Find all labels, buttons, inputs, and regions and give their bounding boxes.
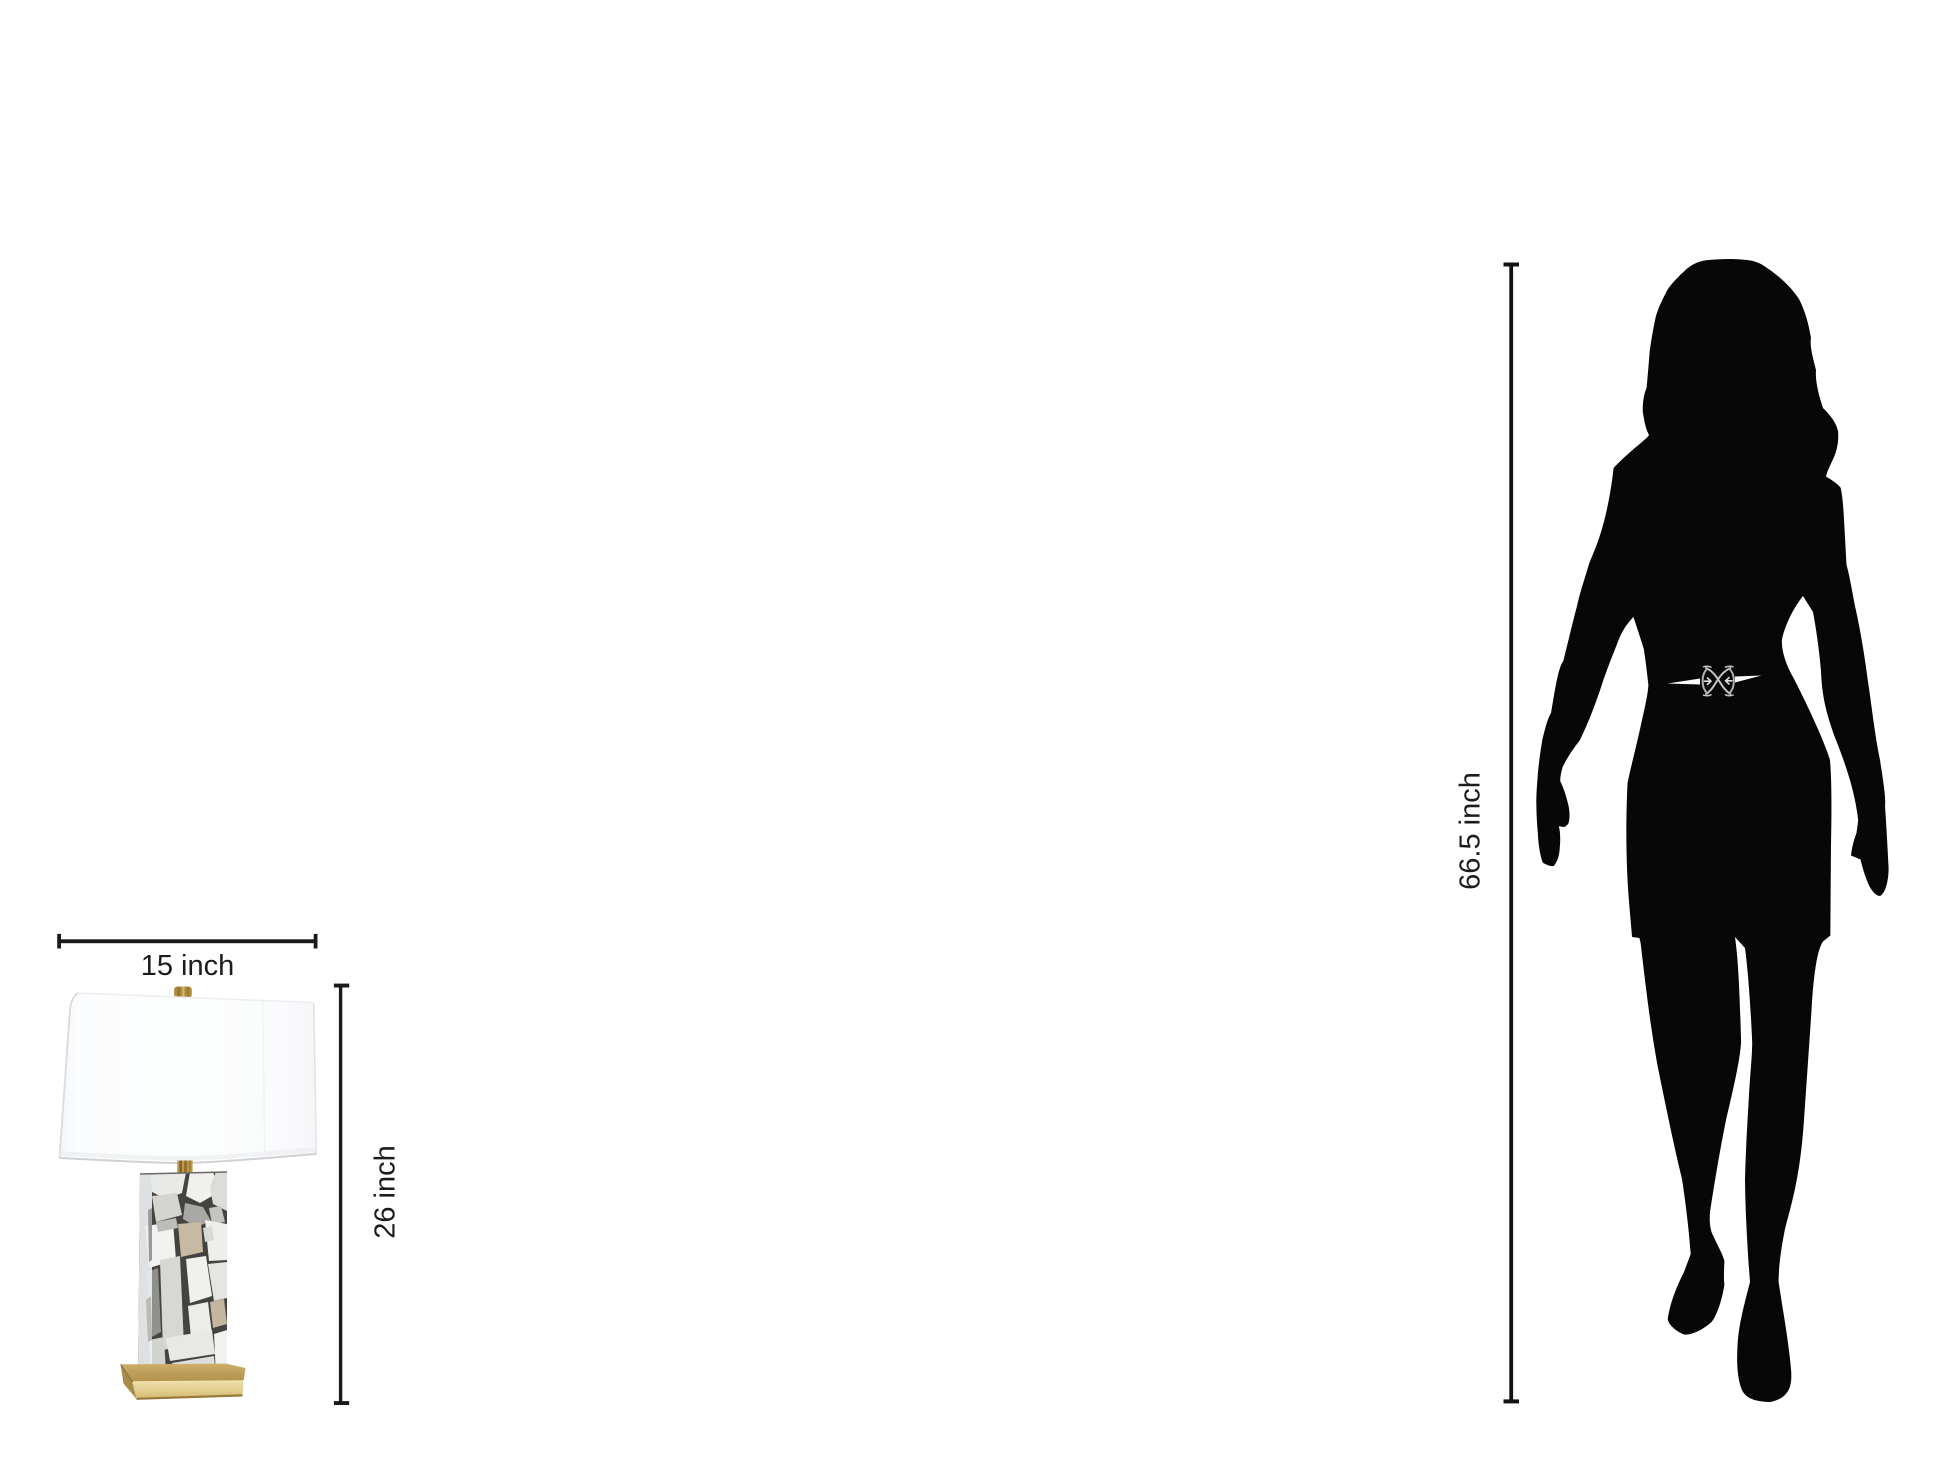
svg-text:66.5 inch: 66.5 inch: [1455, 772, 1487, 890]
svg-text:15 inch: 15 inch: [141, 950, 235, 982]
svg-text:26 inch: 26 inch: [370, 1145, 402, 1239]
